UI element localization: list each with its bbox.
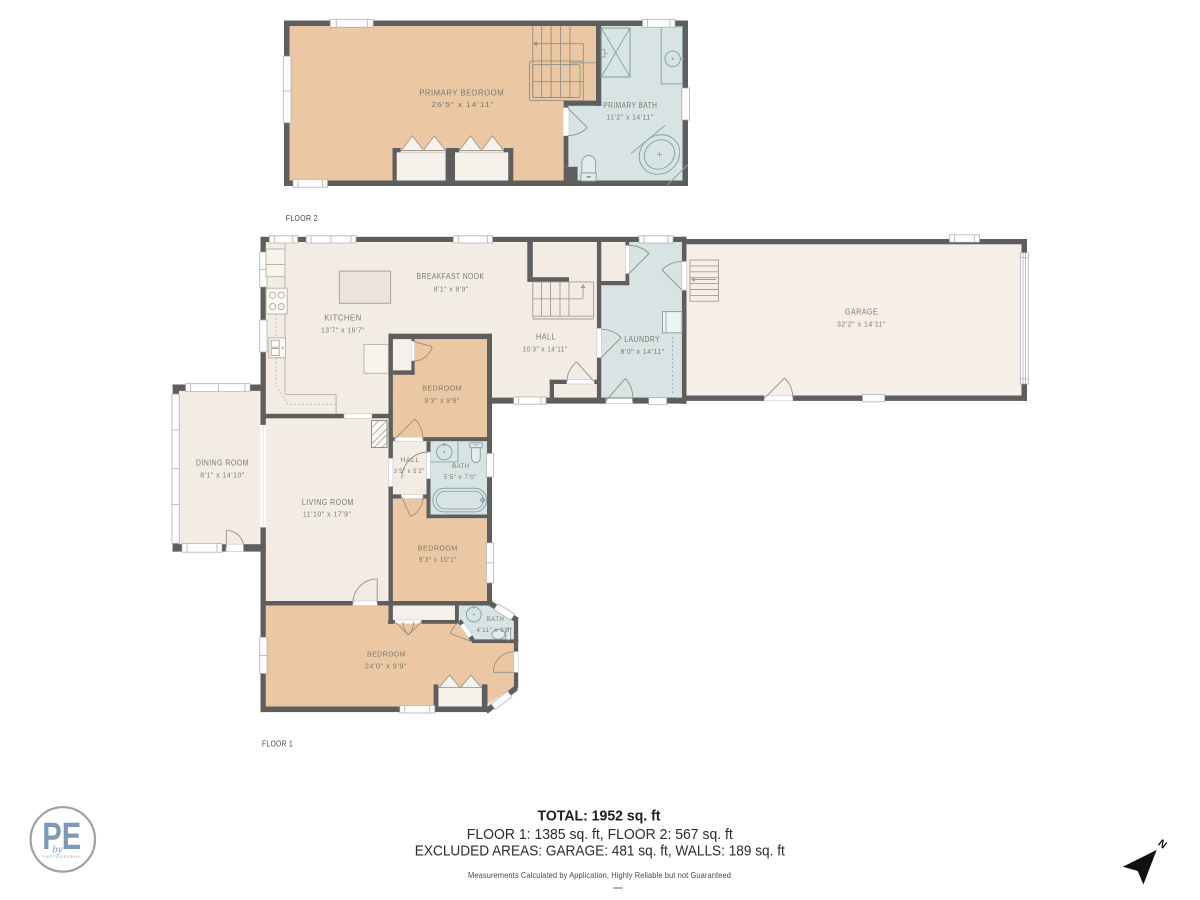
svg-text:FLOOR 1: FLOOR 1 [262,740,293,749]
svg-text:11’2" x 14’11": 11’2" x 14’11" [607,112,654,121]
svg-text:PHOTOGRAPHY: PHOTOGRAPHY [42,855,81,859]
svg-text:FLOOR 1: 1385 sq. ft, FLOOR 2:: FLOOR 1: 1385 sq. ft, FLOOR 2: 567 sq. f… [467,827,733,843]
svg-text:8’1" x 14’10": 8’1" x 14’10" [200,471,245,480]
svg-text:3’5" x 5’2": 3’5" x 5’2" [394,468,425,475]
svg-text:HALL: HALL [400,457,420,464]
svg-text:PRIMARY BEDROOM: PRIMARY BEDROOM [419,89,504,98]
svg-text:Measurements Calculated by App: Measurements Calculated by Application, … [468,870,731,880]
svg-text:BEDROOM: BEDROOM [422,384,462,393]
svg-text:LIVING ROOM: LIVING ROOM [302,498,354,507]
svg-text:BREAKFAST NOOK: BREAKFAST NOOK [417,272,485,281]
svg-text:5’5" x 7’0": 5’5" x 7’0" [444,474,477,481]
svg-text:EXCLUDED AREAS: GARAGE: 481 sq: EXCLUDED AREAS: GARAGE: 481 sq. ft, WALL… [415,843,785,859]
svg-text:by: by [52,844,63,856]
svg-text:HALL: HALL [536,333,556,342]
svg-text:4’11" x 3’3": 4’11" x 3’3" [477,627,513,634]
svg-text:BATH: BATH [452,463,470,470]
svg-text:9’3" x 9’9": 9’3" x 9’9" [425,398,460,405]
svg-text:8’1" x 8’9": 8’1" x 8’9" [434,285,469,294]
svg-text:LAUNDRY: LAUNDRY [624,335,660,344]
svg-text:8’0" x 14’11": 8’0" x 14’11" [621,347,665,356]
svg-text:FLOOR 2: FLOOR 2 [286,214,318,223]
svg-text:24’0" x 9’9": 24’0" x 9’9" [365,664,407,671]
svg-text:BEDROOM: BEDROOM [418,544,458,553]
svg-text:11’10" x 17’9": 11’10" x 17’9" [303,510,352,519]
svg-text:10’3" x 14’11": 10’3" x 14’11" [523,345,568,354]
svg-text:26’5" x 14’11": 26’5" x 14’11" [431,100,494,109]
svg-text:13’7" x 16’7": 13’7" x 16’7" [321,326,365,335]
svg-text:DINING ROOM: DINING ROOM [196,459,249,468]
svg-text:32’2" x 14’11": 32’2" x 14’11" [837,320,886,329]
svg-text:9’3" x 10’1": 9’3" x 10’1" [419,557,457,564]
svg-text:BATH: BATH [487,616,505,623]
svg-text:PRIMARY BATH: PRIMARY BATH [603,101,657,110]
svg-text:BEDROOM: BEDROOM [367,650,406,659]
svg-text:GARAGE: GARAGE [845,308,878,317]
svg-text:KITCHEN: KITCHEN [324,314,362,323]
svg-text:TOTAL: 1952 sq. ft: TOTAL: 1952 sq. ft [538,808,661,825]
